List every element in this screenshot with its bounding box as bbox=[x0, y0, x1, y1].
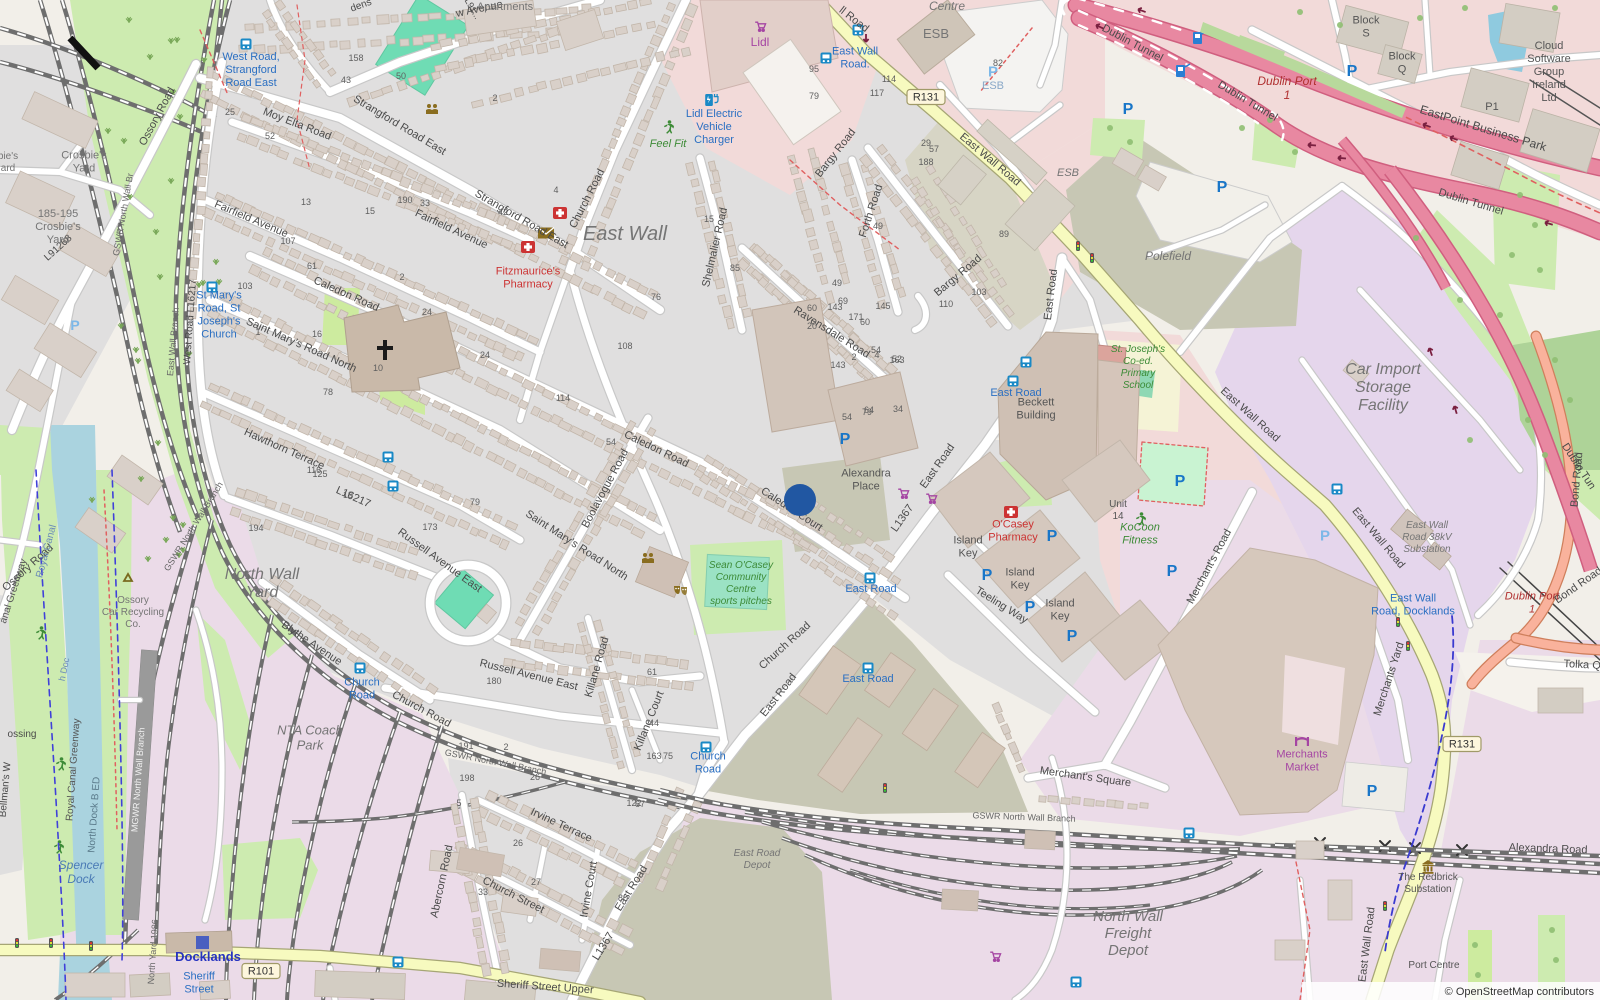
svg-text:2: 2 bbox=[399, 272, 404, 282]
svg-text:R131: R131 bbox=[1449, 739, 1475, 751]
svg-text:ESB: ESB bbox=[982, 80, 1004, 92]
svg-text:16: 16 bbox=[312, 329, 322, 339]
svg-text:Charger: Charger bbox=[694, 134, 734, 146]
svg-text:ossing: ossing bbox=[8, 729, 37, 740]
svg-text:R131: R131 bbox=[913, 92, 939, 104]
svg-text:33: 33 bbox=[478, 887, 488, 897]
svg-text:4: 4 bbox=[553, 185, 558, 195]
svg-text:Fitzmaurice's: Fitzmaurice's bbox=[496, 266, 561, 278]
svg-text:Block: Block bbox=[1353, 15, 1380, 27]
svg-text:Road East: Road East bbox=[225, 77, 276, 89]
svg-text:West Road,: West Road, bbox=[222, 51, 279, 63]
svg-text:2: 2 bbox=[492, 93, 497, 103]
svg-text:114: 114 bbox=[882, 74, 896, 84]
svg-text:82: 82 bbox=[993, 58, 1003, 68]
svg-text:Depot: Depot bbox=[1108, 942, 1149, 959]
svg-text:60: 60 bbox=[807, 303, 817, 313]
svg-text:Car Recycling: Car Recycling bbox=[102, 607, 164, 618]
svg-text:Church: Church bbox=[344, 677, 379, 689]
svg-text:44: 44 bbox=[649, 718, 659, 728]
svg-text:Dublin Port: Dublin Port bbox=[1505, 591, 1560, 603]
svg-text:19: 19 bbox=[343, 490, 353, 500]
svg-text:52: 52 bbox=[265, 131, 275, 141]
svg-text:173: 173 bbox=[422, 522, 437, 532]
svg-text:103: 103 bbox=[971, 287, 986, 297]
svg-text:194: 194 bbox=[248, 523, 263, 533]
svg-text:85: 85 bbox=[730, 263, 740, 273]
svg-text:1: 1 bbox=[255, 327, 260, 337]
svg-text:Cloud: Cloud bbox=[1535, 40, 1564, 52]
svg-text:Fitness: Fitness bbox=[1122, 535, 1158, 547]
svg-text:P: P bbox=[1367, 783, 1378, 800]
svg-text:Docklands: Docklands bbox=[175, 949, 241, 964]
svg-text:Pharmacy: Pharmacy bbox=[503, 279, 553, 291]
svg-text:Crosbie's: Crosbie's bbox=[61, 150, 107, 162]
svg-text:St Mary's: St Mary's bbox=[196, 290, 242, 302]
svg-text:43: 43 bbox=[341, 75, 351, 85]
svg-text:Street: Street bbox=[184, 984, 213, 996]
svg-text:Group: Group bbox=[1534, 66, 1565, 78]
svg-text:East Road: East Road bbox=[734, 848, 781, 859]
svg-text:ESB: ESB bbox=[923, 26, 949, 41]
svg-text:Substation: Substation bbox=[1404, 884, 1451, 895]
svg-text:ard: ard bbox=[1, 163, 15, 174]
svg-text:Feel Fit: Feel Fit bbox=[650, 138, 688, 150]
svg-text:Park: Park bbox=[297, 738, 325, 753]
svg-text:Co.: Co. bbox=[125, 619, 141, 630]
svg-text:P: P bbox=[1067, 628, 1078, 645]
svg-text:Island: Island bbox=[1005, 567, 1034, 579]
svg-text:Strangford: Strangford bbox=[225, 64, 276, 76]
svg-text:Road 38kV: Road 38kV bbox=[1402, 532, 1453, 543]
svg-text:24: 24 bbox=[422, 307, 432, 317]
svg-text:East Wall: East Wall bbox=[1390, 593, 1436, 605]
svg-text:Block: Block bbox=[1389, 51, 1416, 63]
svg-text:Alexandra: Alexandra bbox=[841, 468, 891, 480]
svg-text:Lidl: Lidl bbox=[751, 35, 770, 49]
svg-text:Polefield: Polefield bbox=[1145, 249, 1191, 263]
svg-text:116: 116 bbox=[307, 465, 321, 475]
svg-text:P: P bbox=[1047, 528, 1058, 545]
svg-text:61: 61 bbox=[647, 667, 657, 677]
svg-text:School: School bbox=[1123, 380, 1154, 391]
svg-text:St. Joseph's: St. Joseph's bbox=[1111, 344, 1165, 355]
svg-text:49: 49 bbox=[832, 278, 842, 288]
svg-text:P: P bbox=[1320, 527, 1330, 544]
svg-text:Primary: Primary bbox=[1121, 368, 1156, 379]
svg-text:Yard: Yard bbox=[73, 163, 95, 175]
svg-text:Spencer: Spencer bbox=[59, 858, 105, 872]
svg-text:NTA Coach: NTA Coach bbox=[277, 723, 343, 738]
svg-text:East Road: East Road bbox=[845, 583, 896, 595]
svg-text:P: P bbox=[1175, 473, 1186, 490]
svg-text:80: 80 bbox=[618, 893, 628, 903]
svg-text:191: 191 bbox=[458, 741, 473, 751]
svg-text:Road, St: Road, St bbox=[198, 303, 241, 315]
svg-text:Sheriff: Sheriff bbox=[183, 971, 216, 983]
svg-text:Road, Docklands: Road, Docklands bbox=[1371, 606, 1455, 618]
svg-text:Community: Community bbox=[716, 572, 768, 583]
svg-text:Port Centre: Port Centre bbox=[1408, 960, 1460, 971]
svg-text:79: 79 bbox=[470, 497, 480, 507]
svg-text:Yard: Yard bbox=[246, 584, 280, 601]
svg-text:78: 78 bbox=[323, 387, 333, 397]
svg-text:East Wall: East Wall bbox=[832, 46, 878, 58]
svg-text:Key: Key bbox=[1011, 580, 1030, 592]
svg-text:171: 171 bbox=[848, 312, 863, 322]
svg-text:33: 33 bbox=[420, 198, 430, 208]
svg-text:Merchants: Merchants bbox=[1276, 749, 1328, 761]
svg-text:Key: Key bbox=[1051, 611, 1070, 623]
svg-text:R101: R101 bbox=[248, 966, 274, 978]
svg-text:P: P bbox=[1217, 179, 1228, 196]
svg-text:107: 107 bbox=[280, 236, 295, 246]
svg-text:108: 108 bbox=[617, 341, 632, 351]
svg-text:24: 24 bbox=[480, 350, 490, 360]
svg-text:Market: Market bbox=[1285, 762, 1319, 774]
svg-text:sports pitches: sports pitches bbox=[710, 596, 772, 607]
svg-text:East Wall: East Wall bbox=[1406, 520, 1449, 531]
svg-text:© OpenStreetMap contributors: © OpenStreetMap contributors bbox=[1445, 986, 1595, 998]
svg-text:North Wall: North Wall bbox=[225, 566, 300, 583]
svg-text:54: 54 bbox=[606, 437, 616, 447]
svg-text:Road.: Road. bbox=[840, 59, 869, 71]
svg-text:61: 61 bbox=[307, 261, 317, 271]
svg-text:Substation: Substation bbox=[1403, 544, 1451, 555]
svg-text:5: 5 bbox=[456, 798, 461, 808]
svg-text:Building: Building bbox=[1016, 410, 1055, 422]
svg-text:Tolka Q: Tolka Q bbox=[1563, 658, 1600, 672]
svg-text:69: 69 bbox=[838, 296, 848, 306]
svg-text:117: 117 bbox=[870, 88, 884, 98]
svg-text:East Wall: East Wall bbox=[583, 223, 668, 245]
svg-text:P: P bbox=[1347, 63, 1358, 80]
svg-text:26: 26 bbox=[530, 772, 540, 782]
svg-text:Centre: Centre bbox=[726, 584, 756, 595]
svg-text:1: 1 bbox=[1284, 88, 1291, 102]
svg-text:Software: Software bbox=[1527, 53, 1570, 65]
svg-text:Dublin Port: Dublin Port bbox=[1257, 74, 1317, 88]
svg-text:P: P bbox=[1167, 563, 1178, 580]
svg-text:Depot: Depot bbox=[744, 860, 772, 871]
svg-text:bie's: bie's bbox=[0, 151, 18, 162]
svg-text:79: 79 bbox=[862, 407, 872, 417]
svg-text:163: 163 bbox=[646, 751, 661, 761]
svg-text:Place: Place bbox=[852, 481, 880, 493]
svg-text:Road: Road bbox=[695, 764, 721, 776]
svg-text:103: 103 bbox=[237, 281, 252, 291]
svg-text:Pharmacy: Pharmacy bbox=[988, 532, 1038, 544]
svg-text:Sean O'Casey: Sean O'Casey bbox=[709, 560, 774, 571]
svg-text:Freight: Freight bbox=[1105, 925, 1153, 942]
svg-text:Joseph's: Joseph's bbox=[197, 316, 241, 328]
svg-text:2: 2 bbox=[851, 352, 856, 362]
svg-text:Dock: Dock bbox=[67, 872, 95, 886]
svg-text:76: 76 bbox=[651, 292, 661, 302]
svg-text:52: 52 bbox=[892, 354, 902, 364]
svg-text:26: 26 bbox=[513, 838, 523, 848]
svg-text:Vehicle: Vehicle bbox=[696, 121, 731, 133]
svg-text:KoCoon: KoCoon bbox=[1120, 522, 1160, 534]
svg-text:ESB: ESB bbox=[1057, 167, 1079, 179]
svg-text:East Road: East Road bbox=[842, 673, 893, 685]
svg-text:10: 10 bbox=[373, 363, 383, 373]
svg-text:Lidl Electric: Lidl Electric bbox=[686, 108, 743, 120]
svg-text:15: 15 bbox=[704, 214, 714, 224]
svg-text:57: 57 bbox=[929, 144, 939, 154]
svg-text:1: 1 bbox=[1529, 604, 1535, 616]
svg-text:Storage: Storage bbox=[1355, 379, 1411, 396]
svg-text:42: 42 bbox=[498, 207, 508, 217]
svg-text:P1: P1 bbox=[1485, 101, 1498, 113]
svg-text:15: 15 bbox=[365, 206, 375, 216]
svg-text:S: S bbox=[1362, 28, 1369, 40]
svg-text:Church: Church bbox=[690, 751, 725, 763]
svg-text:Centre: Centre bbox=[929, 0, 965, 13]
svg-text:Island: Island bbox=[1045, 598, 1074, 610]
svg-text:P: P bbox=[70, 317, 79, 333]
svg-text:Co-ed.: Co-ed. bbox=[1123, 356, 1153, 367]
svg-text:198: 198 bbox=[459, 773, 474, 783]
svg-text:50: 50 bbox=[396, 71, 406, 81]
svg-text:75: 75 bbox=[663, 751, 673, 761]
svg-text:67: 67 bbox=[635, 799, 645, 809]
svg-text:The Redbrick: The Redbrick bbox=[1398, 872, 1458, 883]
svg-text:Crosbie's: Crosbie's bbox=[35, 221, 81, 233]
svg-text:East Road: East Road bbox=[990, 387, 1041, 399]
svg-text:89: 89 bbox=[999, 229, 1009, 239]
svg-text:Key: Key bbox=[959, 548, 978, 560]
svg-text:Road: Road bbox=[349, 690, 375, 702]
svg-text:95: 95 bbox=[809, 64, 819, 74]
svg-text:158: 158 bbox=[348, 53, 363, 63]
svg-text:P: P bbox=[982, 567, 993, 584]
svg-text:Facility: Facility bbox=[1358, 397, 1409, 414]
svg-text:25: 25 bbox=[225, 107, 235, 117]
svg-text:P: P bbox=[1123, 101, 1134, 118]
svg-text:North Wall: North Wall bbox=[1093, 908, 1163, 925]
svg-text:110: 110 bbox=[939, 299, 953, 309]
svg-text:O'Casey: O'Casey bbox=[992, 519, 1034, 531]
svg-text:180: 180 bbox=[486, 676, 501, 686]
svg-text:188: 188 bbox=[918, 157, 933, 167]
svg-text:34: 34 bbox=[893, 404, 903, 414]
svg-text:143: 143 bbox=[830, 360, 845, 370]
svg-text:14: 14 bbox=[1112, 511, 1124, 522]
svg-text:27: 27 bbox=[531, 877, 541, 887]
svg-text:Yard: Yard bbox=[47, 234, 69, 246]
svg-text:114: 114 bbox=[556, 393, 570, 403]
svg-text:Unit: Unit bbox=[1109, 499, 1127, 510]
svg-text:145: 145 bbox=[875, 301, 890, 311]
svg-text:Q: Q bbox=[1398, 64, 1407, 76]
svg-text:54: 54 bbox=[871, 345, 881, 355]
svg-text:Ltd: Ltd bbox=[1541, 92, 1556, 104]
svg-text:Car Import: Car Import bbox=[1345, 361, 1421, 378]
svg-text:Island: Island bbox=[953, 535, 982, 547]
svg-text:185-195: 185-195 bbox=[38, 208, 78, 220]
svg-text:54: 54 bbox=[842, 412, 852, 422]
svg-text:49: 49 bbox=[873, 221, 883, 231]
svg-text:Ireland: Ireland bbox=[1532, 79, 1566, 91]
svg-text:79: 79 bbox=[809, 91, 819, 101]
svg-text:2: 2 bbox=[503, 742, 508, 752]
svg-text:P: P bbox=[840, 431, 851, 448]
svg-text:Ossory: Ossory bbox=[117, 595, 149, 606]
svg-text:13: 13 bbox=[301, 197, 311, 207]
svg-text:20: 20 bbox=[807, 321, 817, 331]
svg-text:190: 190 bbox=[397, 195, 412, 205]
svg-text:Church: Church bbox=[201, 329, 236, 341]
svg-text:Apartments: Apartments bbox=[477, 1, 534, 13]
